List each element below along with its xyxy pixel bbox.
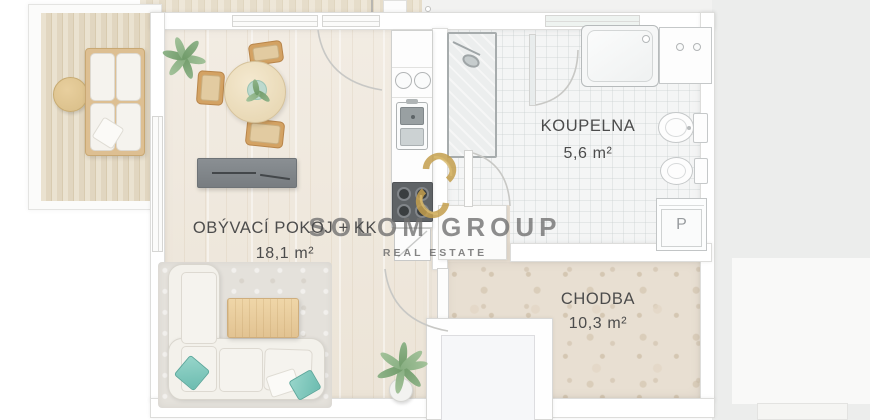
- bathroom-name: KOUPELNA: [513, 117, 663, 136]
- living-room-name: OBÝVACÍ POKOJ + KK: [172, 219, 398, 238]
- outdoor-sofa: [85, 48, 145, 156]
- counter-bowl: [414, 72, 431, 89]
- tv-console: [197, 158, 297, 188]
- washing-machine-label: P: [657, 216, 706, 234]
- dining-table: [224, 61, 286, 123]
- bidet-icon: [658, 156, 711, 186]
- outdoor-cushion: [116, 53, 141, 101]
- window-top-mid: [322, 15, 380, 27]
- outdoor-cushion: [90, 53, 115, 101]
- counter-bowl: [395, 72, 412, 89]
- vanity-counter: [659, 27, 712, 84]
- floor-plan: P: [0, 0, 870, 420]
- window-top-left: [232, 15, 318, 27]
- bathtub-icon: [581, 25, 659, 87]
- window-balcony-door: [152, 116, 163, 252]
- bathroom-area: 5,6 m²: [513, 145, 663, 163]
- outdoor-table: [53, 77, 88, 112]
- balcony: [28, 4, 162, 210]
- hallway-name: CHODBA: [518, 290, 678, 309]
- background-right-panel: [732, 258, 870, 404]
- table-centerpiece: [247, 80, 267, 100]
- potted-plant-icon: [375, 340, 427, 398]
- shower-door-leaf: [529, 34, 536, 106]
- hallway-area: 10,3 m²: [518, 315, 678, 333]
- dining-chair: [196, 70, 225, 106]
- washing-machine-icon: P: [656, 198, 707, 251]
- bathroom-door-leaf: [464, 150, 473, 207]
- toilet-icon: [656, 111, 711, 145]
- coffee-table: [227, 298, 299, 338]
- shower-icon: [447, 32, 497, 158]
- living-room-area: 18,1 m²: [172, 245, 398, 263]
- living-hall-door-leaf: [437, 268, 449, 325]
- background-bottom-right-step: [757, 403, 848, 420]
- entrance-door: [426, 318, 553, 420]
- sink-icon: [396, 102, 428, 150]
